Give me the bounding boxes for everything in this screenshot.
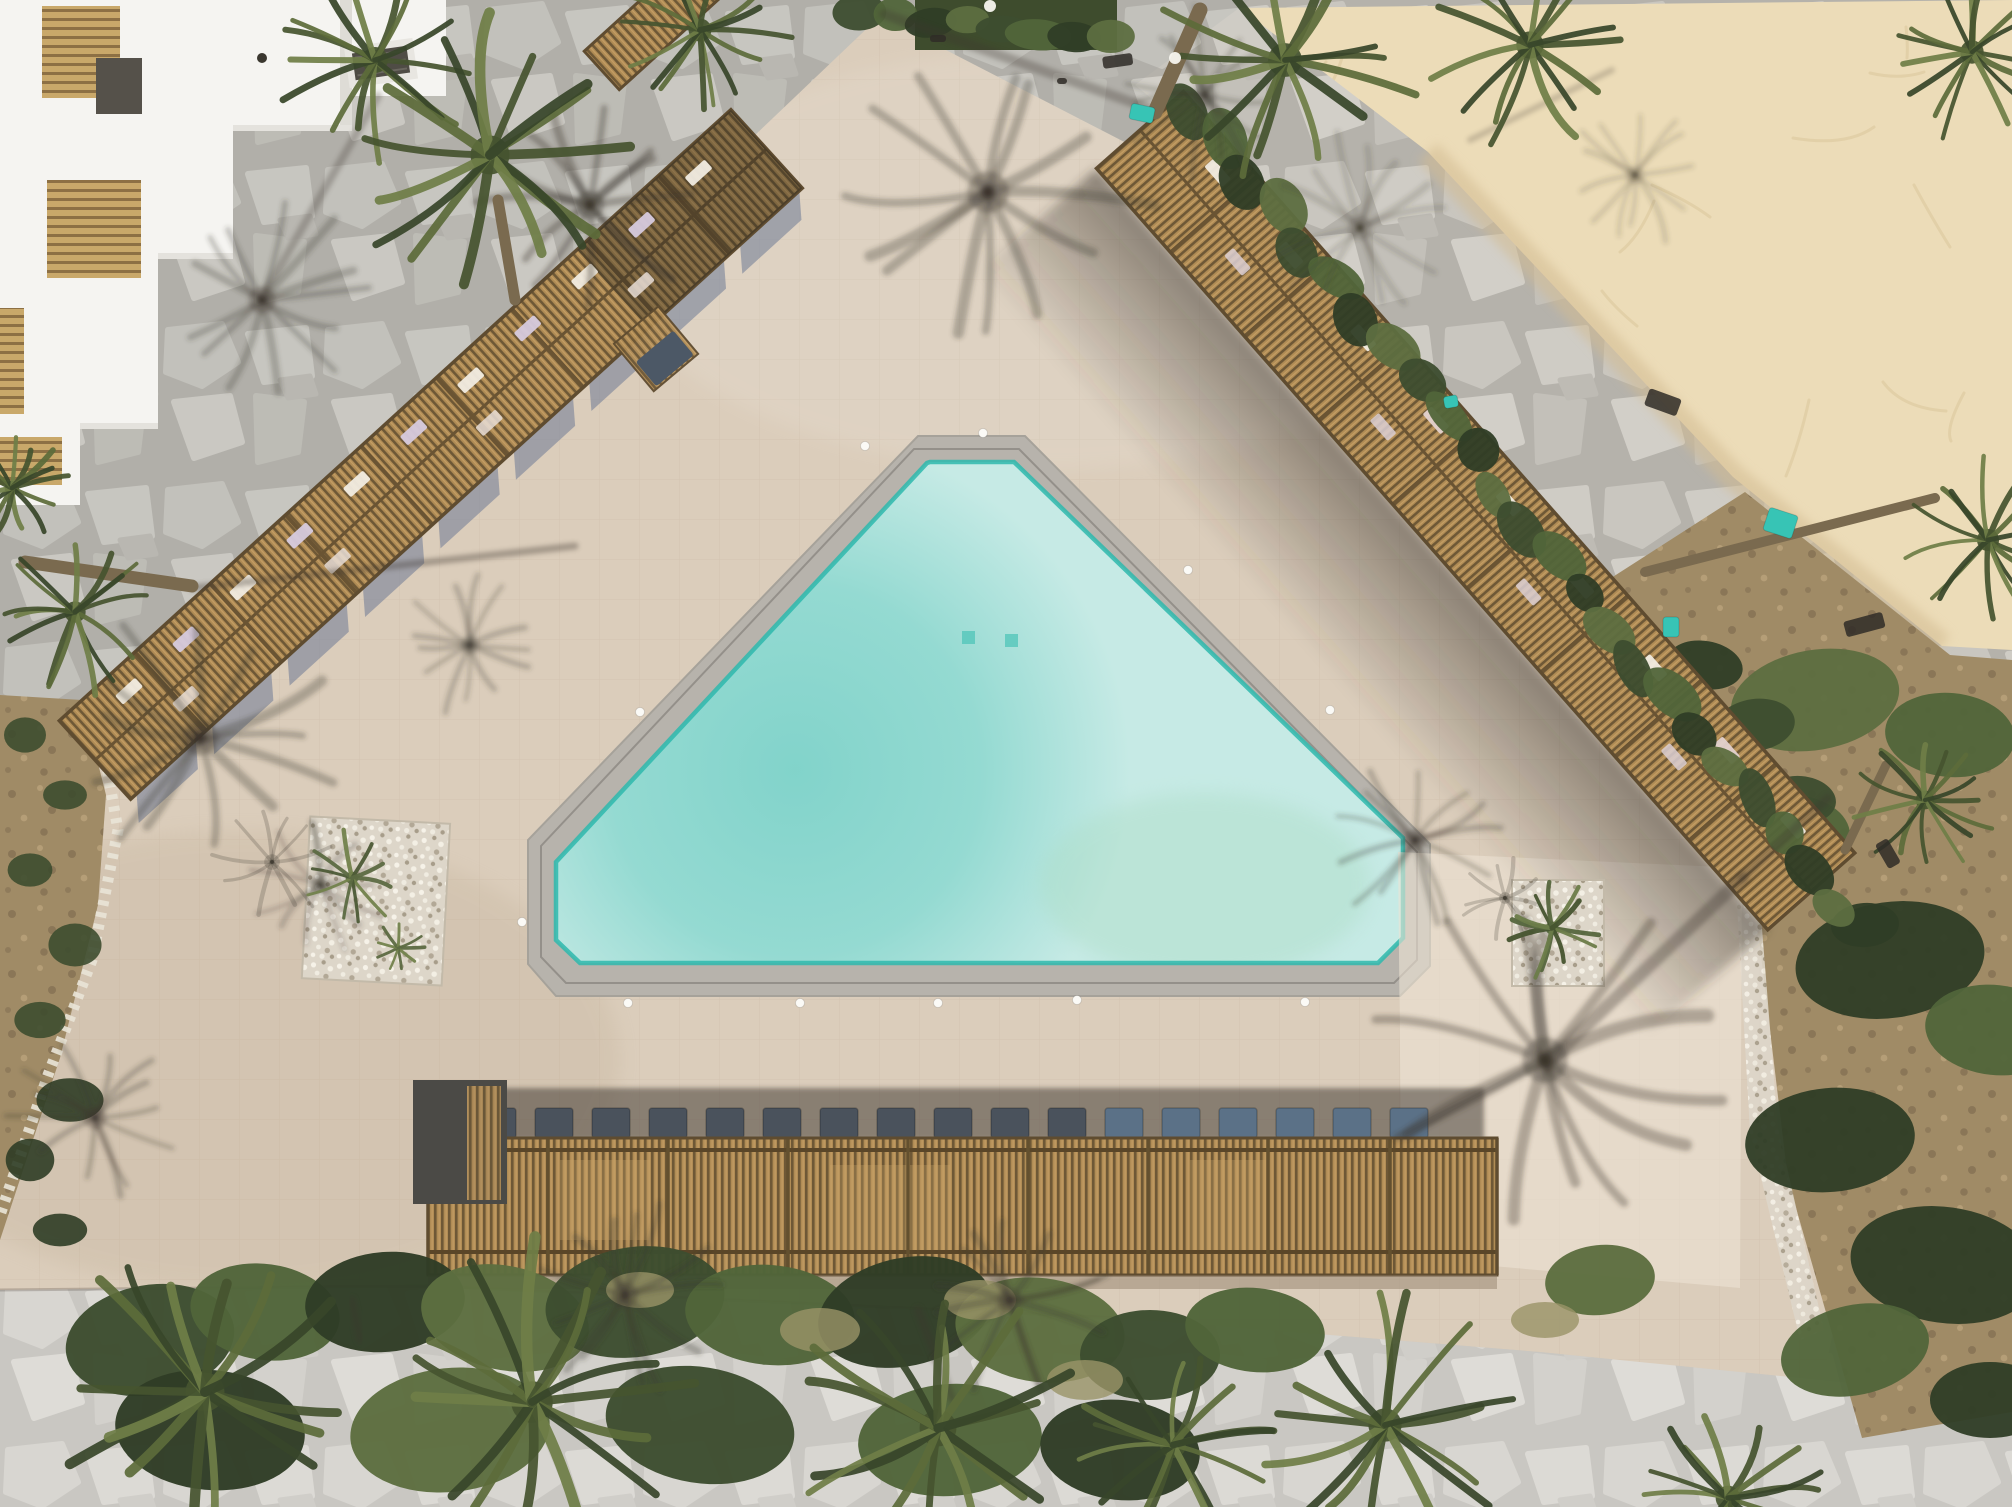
deck-light: [796, 999, 805, 1008]
lounger-cushion: [1048, 1108, 1086, 1138]
pebble-patch-olive-tree: [302, 816, 450, 985]
sun-loungers-row: [478, 1108, 1428, 1138]
pool-green-tint: [1040, 793, 1370, 977]
pergola-interior-glow: [1190, 1160, 1270, 1250]
balcony-wood-screen: [0, 308, 24, 414]
garden-plant: [48, 924, 101, 967]
lounger-cushion: [649, 1108, 687, 1138]
deck-light: [1301, 998, 1310, 1007]
garden-plant: [8, 853, 53, 886]
dry-grass-tuft: [1511, 1302, 1579, 1338]
balcony-wood-screen: [47, 180, 141, 278]
sand-ripple: [1906, 27, 1907, 58]
lounger-cushion: [1162, 1108, 1200, 1138]
dry-grass-tuft: [780, 1308, 860, 1352]
deck-light: [636, 708, 645, 717]
lounger-cushion: [877, 1108, 915, 1138]
lounger-cushion: [763, 1108, 801, 1138]
deck-light: [1184, 566, 1193, 575]
white-object: [984, 0, 996, 12]
lounger-cushion: [1276, 1108, 1314, 1138]
deck-light: [861, 442, 870, 451]
garden-plant: [4, 717, 46, 752]
lounger-cushion: [535, 1108, 573, 1138]
lounger-cushion: [1333, 1108, 1371, 1138]
lounger-cushion: [706, 1108, 744, 1138]
deck-light: [518, 918, 527, 927]
pergola-interior-glow: [830, 1165, 950, 1250]
deck-light: [1326, 706, 1335, 715]
balcony-interior: [96, 58, 142, 114]
lounger-cushion: [1219, 1108, 1257, 1138]
deck-light: [624, 999, 633, 1008]
white-object: [1169, 52, 1181, 64]
lounger-cushion: [820, 1108, 858, 1138]
pool-drain: [1005, 634, 1018, 647]
beach-bag: [1443, 395, 1459, 409]
beach-bag: [1663, 617, 1679, 637]
lounger-cushion: [592, 1108, 630, 1138]
roof-vent: [257, 53, 267, 63]
charcoal-roof-wood-strip: [467, 1086, 501, 1200]
pergola-bottom: [413, 1080, 1497, 1289]
deck-light: [1073, 996, 1082, 1005]
pool-drain: [962, 631, 975, 644]
lounger-cushion: [1105, 1108, 1143, 1138]
garden-plant: [33, 1214, 87, 1247]
lounger-cushion: [934, 1108, 972, 1138]
aerial-photo-stage: [0, 0, 2012, 1507]
top-edge-plant: [1087, 20, 1135, 53]
deck-light: [934, 999, 943, 1008]
garden-plant: [14, 1002, 65, 1038]
aerial-resort-pool-photo: [0, 0, 2012, 1507]
deck-light: [979, 429, 988, 438]
garden-plant: [43, 780, 87, 809]
lounger-cushion: [991, 1108, 1029, 1138]
path-object: [1057, 78, 1067, 84]
path-object: [930, 35, 946, 42]
